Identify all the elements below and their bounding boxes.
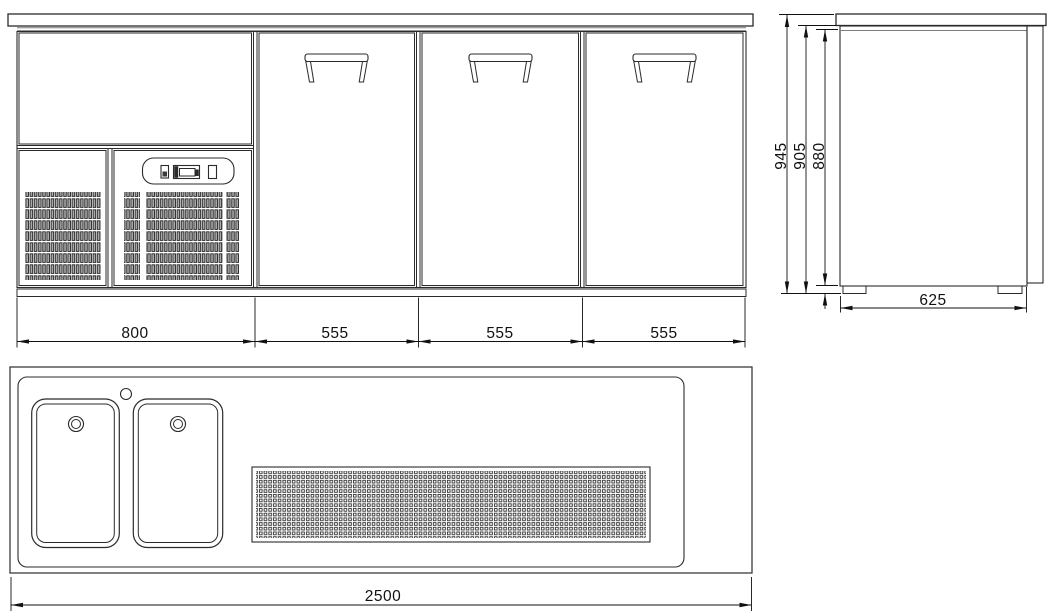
dim-label-555-1: 555	[321, 325, 348, 342]
foot-front	[843, 286, 866, 294]
door-handle-icon	[633, 54, 696, 82]
drawing-svg: 800 555 555 555	[0, 0, 1053, 612]
vent-grille-left	[25, 192, 101, 280]
countertop-front	[8, 14, 753, 26]
door-handle-icon	[469, 54, 532, 82]
cabinet-body-side	[840, 26, 1027, 286]
front-dimensions: 800 555 555 555	[17, 298, 745, 348]
dim-label-905: 905	[792, 142, 809, 169]
sink-right	[133, 399, 222, 548]
dim-label-945: 945	[773, 142, 790, 169]
door-2	[422, 33, 579, 286]
door-1	[259, 33, 415, 286]
front-view: 800 555 555 555	[8, 14, 753, 348]
vent-grille-right-b	[146, 192, 223, 280]
left-compartment	[17, 33, 254, 288]
countertop-side	[836, 14, 1046, 26]
upper-blank-panel	[19, 33, 252, 144]
drainer-grille	[252, 467, 650, 542]
indicator-button-icon	[209, 166, 217, 179]
door-3	[586, 33, 743, 286]
door-handle-icon	[305, 54, 368, 82]
dim-label-555-2: 555	[486, 325, 513, 342]
tap-hole-icon	[121, 389, 132, 400]
control-panel	[143, 158, 235, 184]
technical-drawing-canvas: 800 555 555 555	[0, 0, 1053, 612]
vent-grille-right-a	[124, 192, 140, 280]
sink-left	[32, 399, 120, 548]
drain-hole-icon	[69, 417, 84, 432]
dim-label-2500: 2500	[365, 588, 401, 605]
dim-label-880: 880	[811, 142, 828, 169]
dim-label-800: 800	[121, 325, 148, 342]
drain-hole-icon	[171, 417, 186, 432]
plan-view: 2500	[10, 367, 752, 611]
foot-rear	[998, 286, 1022, 294]
dim-label-625: 625	[919, 292, 946, 309]
plinth	[17, 289, 746, 297]
vent-grille-right-c	[226, 192, 239, 280]
door-dividers	[254, 32, 585, 288]
back-panel	[1027, 26, 1043, 283]
dim-label-555-3: 555	[650, 325, 677, 342]
plan-dimensions: 2500	[11, 577, 752, 611]
side-dimensions: 945 905 880 625	[773, 15, 1027, 313]
side-view: 945 905 880 625	[773, 14, 1046, 313]
